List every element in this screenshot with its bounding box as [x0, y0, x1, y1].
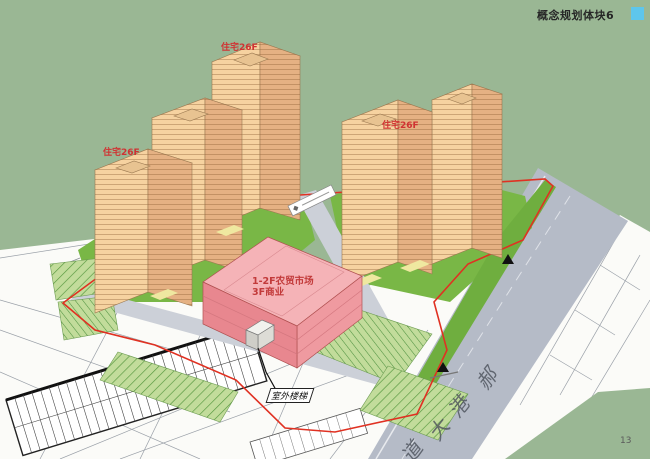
tower-label-right: 住宅26F	[382, 118, 419, 131]
market-label-line2: 3F商业	[252, 287, 314, 298]
block-color-swatch	[631, 7, 644, 20]
massing-render	[0, 0, 650, 459]
presentation-slide: 概念规划体块6 住宅26F 住宅26F 住宅26F 1-2F农贸市场 3F商业 …	[0, 0, 650, 459]
tower-b	[95, 149, 192, 313]
market-label-line1: 1-2F农贸市场	[252, 276, 314, 287]
slide-title: 概念规划体块6	[537, 7, 614, 23]
tower-label-top: 住宅26F	[221, 40, 258, 53]
tower-label-left: 住宅26F	[103, 145, 140, 158]
outdoor-stair-label: 室外楼梯	[266, 388, 315, 403]
tower-e	[432, 84, 502, 264]
market-label: 1-2F农贸市场 3F商业	[252, 276, 314, 298]
page-number: 13	[620, 436, 631, 446]
